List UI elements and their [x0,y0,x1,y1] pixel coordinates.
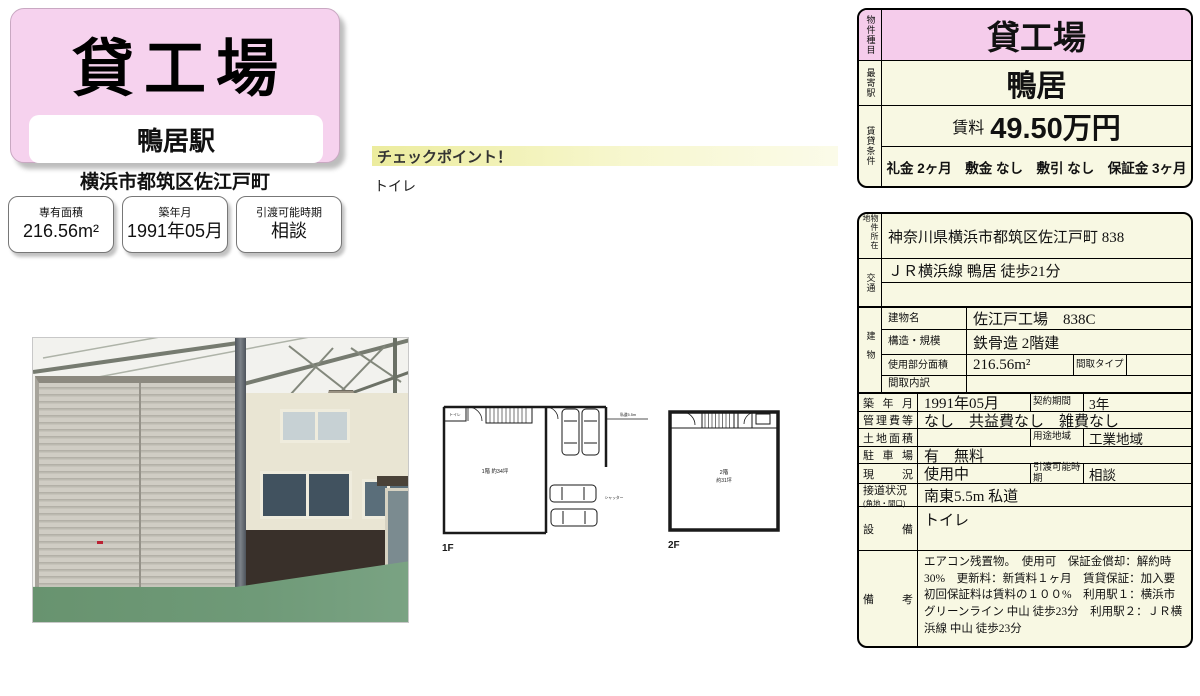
road-label: 私道5.5m [620,412,636,417]
frontage-value: 南東5.5m 私道 [918,484,1191,506]
row-remarks: 備 考 エアコン残置物。 使用可 保証金償却：解約時30% 更新料：新賃料１ヶ月… [859,550,1191,646]
plan-2f-caption: 2F [668,540,680,551]
frontage-label: 接道状況 (角地・間口) [859,484,918,506]
floorplan-1f: トイレ 1階 約34坪 シャッター 私道5.5m 1F [438,393,653,555]
used-area-label: 使用部分面積 [882,355,967,376]
row-building-name: 建物名 佐江戸工場 838C [882,308,1193,329]
stat-area-value: 216.56m² [23,220,99,243]
handover-value: 相談 [1084,464,1191,483]
nearest-station-label: 最寄駅 [859,61,882,105]
stat-area: 専有面積 216.56m² [8,196,114,253]
location-value: 神奈川県横浜市都筑区佐江戸町 838 [882,214,1191,258]
detail-table: 物件所在地 神奈川県横浜市都筑区佐江戸町 838 交通 ＪＲ横浜線 鴨居 徒歩2… [857,212,1193,648]
structure-value: 鉄骨造 2階建 [967,330,1193,353]
row-current-status: 現 況 使用中 引渡可能時期 相談 [859,463,1191,483]
door-arc [546,407,558,419]
stairs [486,407,532,423]
row-building: 建物 建物名 佐江戸工場 838C 構造・規模 鉄骨造 2階建 使用部分面積 2… [859,306,1191,392]
row-layout-detail: 間取内訳 [882,375,1193,392]
stat-built-value: 1991年05月 [127,220,223,243]
property-type-value: 貸工場 [882,10,1191,60]
row-parking: 駐車場 有 無料 [859,446,1191,463]
door-arc [682,412,695,425]
current-status-label: 現 況 [859,464,918,483]
row-management-fee: 管理費等 なし 共益費なし 雑費なし [859,411,1191,428]
parking-label: 駐車場 [859,447,918,463]
plan-1f-caption: 1F [442,543,454,554]
area-1f-label: 1階 約34坪 [482,467,509,475]
land-area-label: 土地面積 [859,429,918,446]
location-label: 物件所在地 [859,214,882,258]
toilet-label: トイレ [449,412,461,417]
access-value-2 [882,283,1191,306]
upper-window [280,409,350,443]
summary-table: 物件種目 貸工場 最寄駅 鴨居 賃貸条件 賃料 49.50万円 礼金 2ヶ月 敷… [857,8,1193,188]
equipment-label: 設 備 [859,507,918,550]
layout-detail-value [967,376,1193,392]
layout-detail-label: 間取内訳 [882,376,967,392]
window-mullion [315,412,318,440]
rent-value: 49.50万円 [990,105,1121,147]
steel-column [235,338,246,598]
area-2f-line1: 2階 [720,468,729,476]
contract-term-value: 3年 [1084,394,1191,411]
access-label: 交通 [859,259,882,306]
building-name-label: 建物名 [882,308,967,329]
property-address-short: 横浜市都筑区佐江戸町 [10,167,340,194]
rent-line: 賃料 49.50万円 [882,106,1191,147]
management-fee-value: なし 共益費なし 雑費なし [918,412,1191,428]
stat-built-label: 築年月 [159,207,192,220]
building-name-value: 佐江戸工場 838C [967,308,1193,329]
shutter-label: シャッター [605,495,624,500]
floorplan-2f: 2階 約31坪 2F [660,402,790,552]
management-fee-label: 管理費等 [859,412,918,428]
stat-handover-label: 引渡可能時期 [256,207,322,220]
row-equipment: 設 備 トイレ [859,506,1191,550]
contract-term-label: 契約期間 [1030,394,1084,411]
row-frontage: 接道状況 (角地・間口) 南東5.5m 私道 [859,483,1191,506]
shutter-seam [139,383,141,605]
checkpoint-banner: チェックポイント！ [372,146,838,166]
stat-area-label: 専有面積 [39,207,83,220]
handover-label: 引渡可能時期 [1030,464,1084,483]
zoning-value: 工業地域 [1084,429,1191,446]
remarks-label: 備 考 [859,551,918,646]
built-date-value: 1991年05月 [918,394,1030,411]
used-area-value: 216.56m² [967,355,1073,376]
zoning-label: 用途地域 [1030,429,1084,446]
equipment-value: トイレ [918,507,1191,550]
shutter-mark [97,541,103,544]
terms-value: 礼金 2ヶ月 敷金 なし 敷引 なし 保証金 3ヶ月 [882,147,1191,186]
row-built-date: 築年月 1991年05月 契約期間 3年 [859,392,1191,411]
layout-type-label: 間取タイプ [1073,355,1127,376]
layout-type-value [1127,355,1193,376]
stat-handover: 引渡可能時期 相談 [236,196,342,253]
parked-cars [550,409,599,526]
rent-label: 賃料 [952,114,984,138]
area-2f-line2: 約31坪 [716,477,732,484]
row-property-type: 物件種目 貸工場 [859,10,1191,60]
station-name-box: 鴨居駅 [29,115,323,163]
parking-value: 有 無料 [918,447,1191,463]
land-area-value [918,429,1030,446]
row-used-area: 使用部分面積 216.56m² 間取タイプ [882,354,1193,376]
row-land-area: 土地面積 用途地域 工業地域 [859,428,1191,446]
property-type-label: 物件種目 [859,10,882,60]
structure-label: 構造・規模 [882,330,967,353]
stat-handover-value: 相談 [271,220,307,243]
nearest-station-value: 鴨居 [882,61,1191,105]
checkpoint-body: トイレ [374,176,416,196]
page-title: 貸工場 [11,15,339,111]
property-photo [32,337,409,623]
remarks-value: エアコン残置物。 使用可 保証金償却：解約時30% 更新料：新賃料１ヶ月 賃貸保… [918,551,1191,646]
current-status-value: 使用中 [918,464,1030,483]
row-lease-terms: 賃貸条件 賃料 49.50万円 礼金 2ヶ月 敷金 なし 敷引 なし 保証金 3… [859,105,1191,186]
door-arc [744,412,756,424]
row-structure: 構造・規模 鉄骨造 2階建 [882,329,1193,353]
lease-terms-label: 賃貸条件 [859,106,882,186]
row-access: 交通 ＪＲ横浜線 鴨居 徒歩21分 [859,258,1191,306]
door-arc [468,407,482,421]
title-card: 貸工場 鴨居駅 [10,8,340,163]
building-label: 建物 [859,308,882,392]
window-mullion [306,474,309,516]
roller-shutter [35,376,243,609]
built-date-label: 築年月 [859,394,918,411]
access-value: ＪＲ横浜線 鴨居 徒歩21分 [882,259,1191,283]
row-location: 物件所在地 神奈川県横浜市都筑区佐江戸町 838 [859,214,1191,258]
row-nearest-station: 最寄駅 鴨居 [859,60,1191,105]
main-window [260,471,352,519]
stat-built: 築年月 1991年05月 [122,196,228,253]
door-canopy [377,476,409,486]
